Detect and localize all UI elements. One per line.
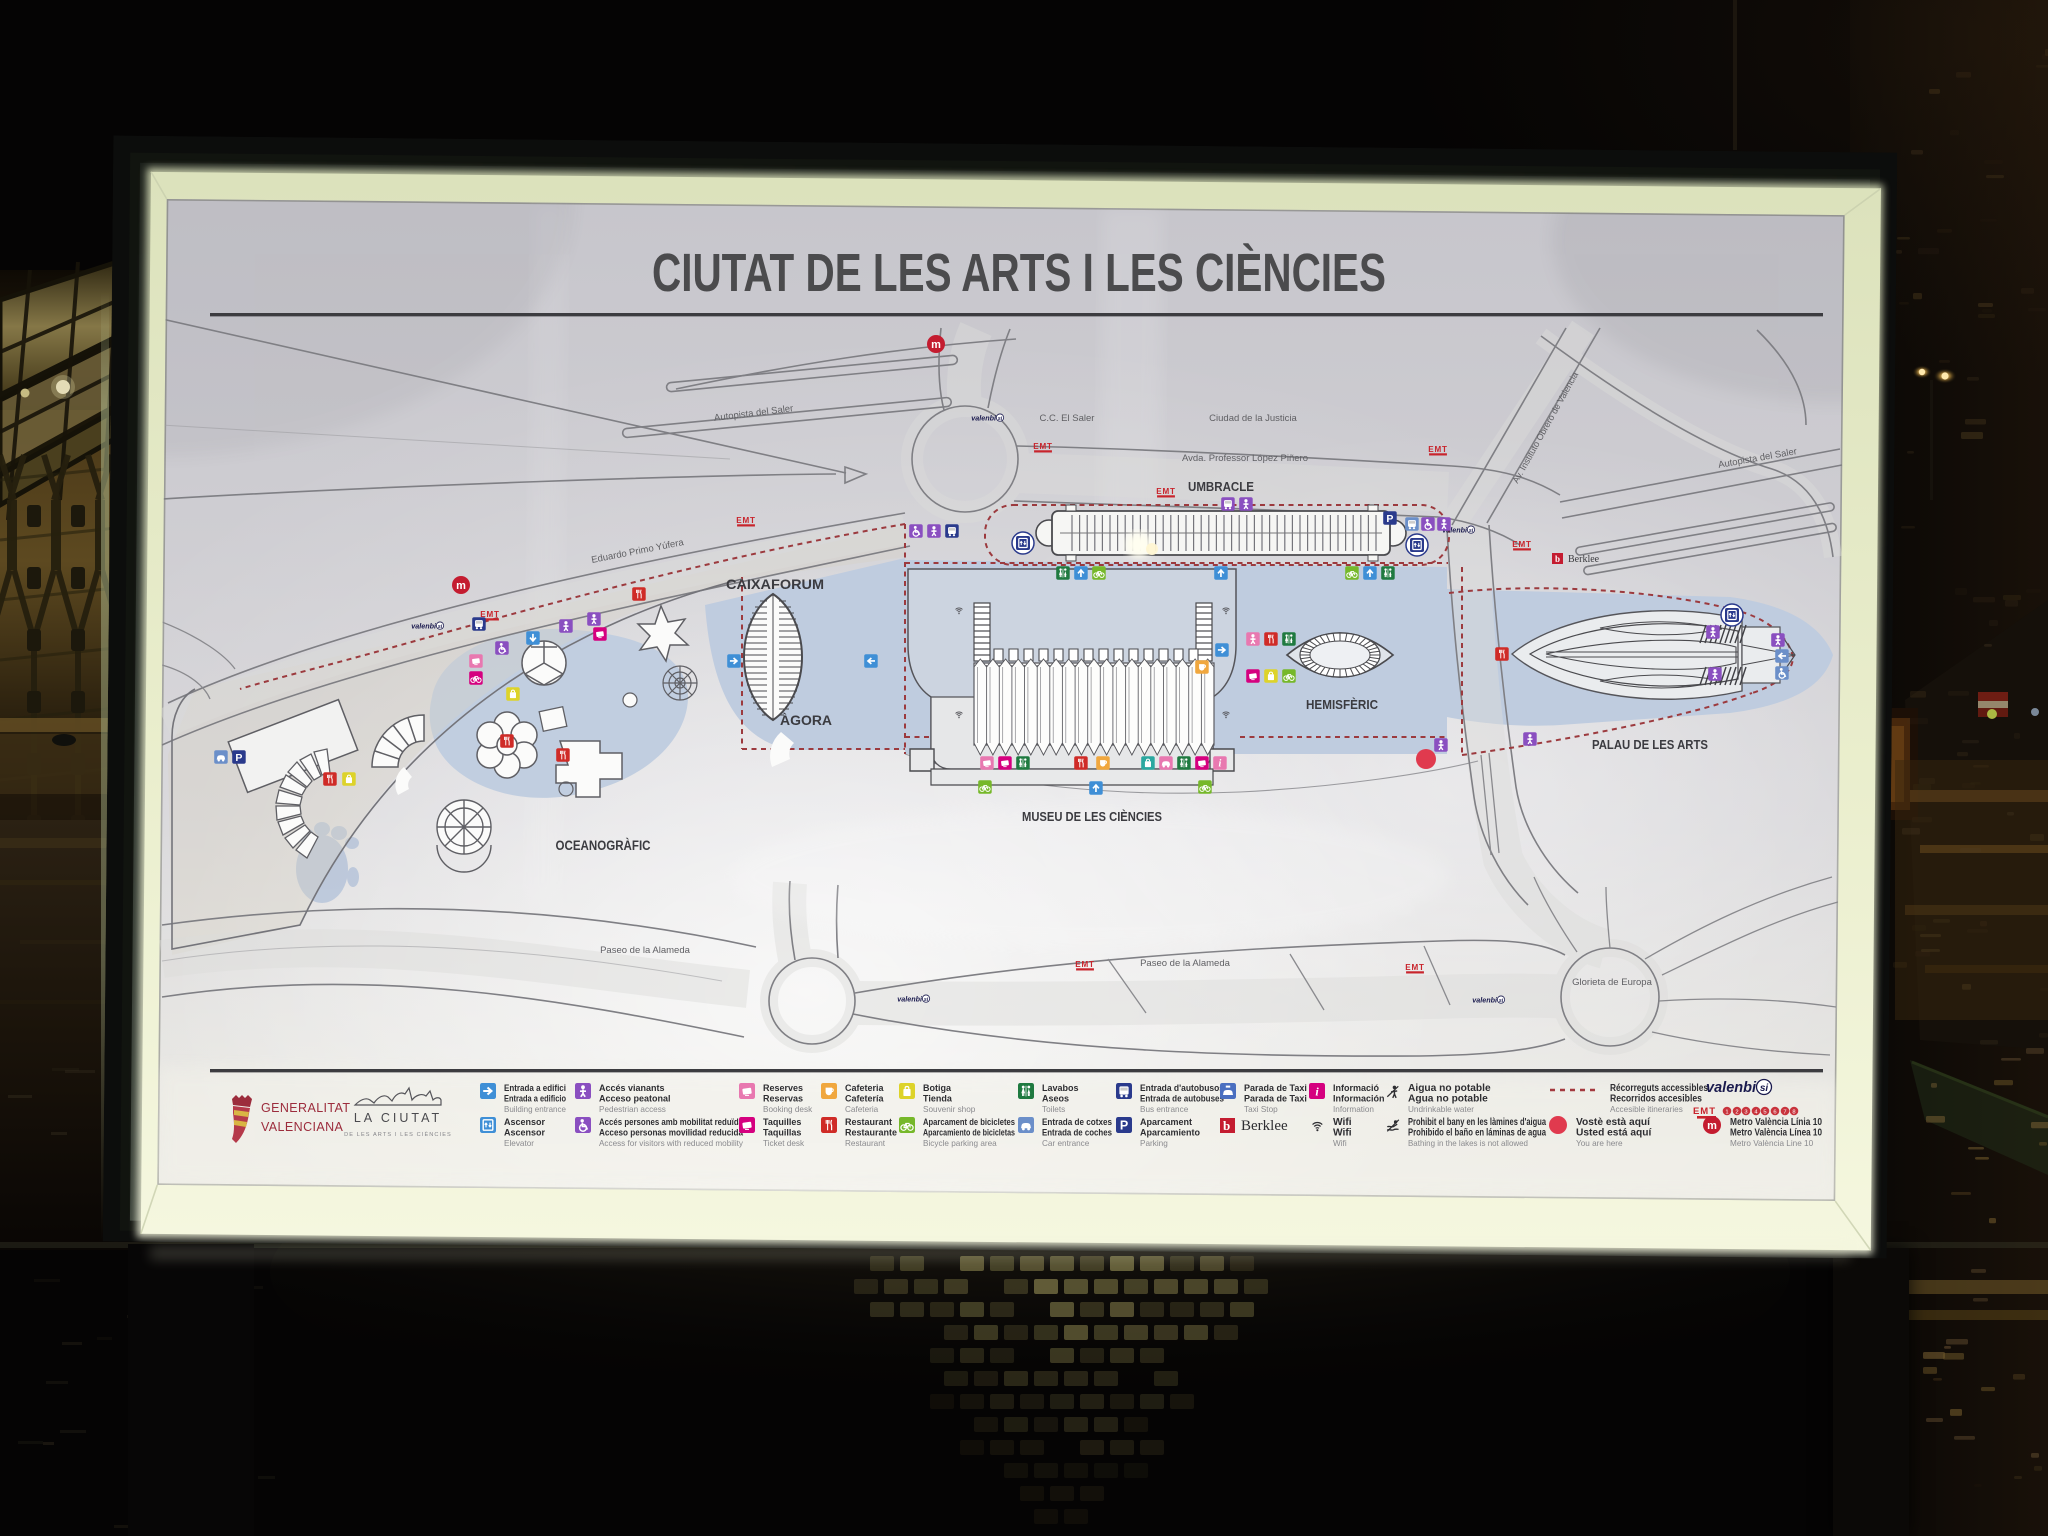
svg-text:DE LES ARTS I LES CIÈNCIES: DE LES ARTS I LES CIÈNCIES <box>344 1131 452 1138</box>
svg-text:Accés vianants: Accés vianants <box>599 1083 665 1093</box>
svg-text:LA CIUTAT: LA CIUTAT <box>354 1111 442 1125</box>
svg-text:Taquilles: Taquilles <box>763 1117 801 1127</box>
svg-text:ÀGORA: ÀGORA <box>780 713 832 728</box>
svg-text:i: i <box>1219 759 1222 770</box>
svg-text:Building entrance: Building entrance <box>504 1105 566 1114</box>
svg-text:Wifi: Wifi <box>1333 1128 1352 1139</box>
svg-text:EMT: EMT <box>736 516 756 525</box>
svg-text:Botiga: Botiga <box>923 1083 952 1093</box>
svg-text:Accesible itineraries: Accesible itineraries <box>1610 1105 1683 1114</box>
svg-text:P: P <box>1386 513 1393 525</box>
svg-text:P: P <box>235 752 242 764</box>
svg-text:Information: Information <box>1333 1105 1374 1114</box>
svg-text:7: 7 <box>1783 1110 1786 1116</box>
svg-text:Prohibido el baño en láminas d: Prohibido el baño en láminas de agua <box>1408 1128 1546 1139</box>
svg-text:si: si <box>924 997 929 1003</box>
svg-text:Entrada d'autobusos: Entrada d'autobusos <box>1140 1083 1224 1093</box>
svg-text:Entrada a edifici: Entrada a edifici <box>504 1083 566 1093</box>
svg-text:Pedestrian access: Pedestrian access <box>599 1105 666 1114</box>
svg-text:Aigua no potable: Aigua no potable <box>1408 1083 1491 1094</box>
svg-text:Glorieta de Europa: Glorieta de Europa <box>1572 977 1652 988</box>
svg-text:Berklee: Berklee <box>1568 554 1600 565</box>
svg-text:P: P <box>1120 1119 1128 1133</box>
svg-text:si: si <box>438 624 443 630</box>
svg-text:Entrada de coches: Entrada de coches <box>1042 1128 1112 1138</box>
svg-text:Ticket desk: Ticket desk <box>763 1139 805 1148</box>
svg-text:b: b <box>1223 1118 1230 1133</box>
svg-text:Paseo de la Alameda: Paseo de la Alameda <box>1140 958 1231 969</box>
svg-text:Parada de Taxi: Parada de Taxi <box>1244 1094 1307 1104</box>
svg-text:Bus entrance: Bus entrance <box>1140 1105 1189 1114</box>
svg-text:Access for visitors with reduc: Access for visitors with reduced mobilit… <box>599 1139 744 1148</box>
svg-text:valenbi: valenbi <box>411 621 437 630</box>
svg-text:Lavabos: Lavabos <box>1042 1083 1079 1093</box>
svg-text:EMT: EMT <box>1156 487 1176 496</box>
svg-text:CIUTAT DE LES ARTS I LES CIÈNC: CIUTAT DE LES ARTS I LES CIÈNCIES <box>652 243 1386 303</box>
svg-text:valenbi: valenbi <box>971 413 997 422</box>
svg-text:si: si <box>1499 998 1504 1004</box>
svg-text:m: m <box>456 580 466 592</box>
svg-text:Entrada de cotxes: Entrada de cotxes <box>1042 1117 1112 1127</box>
svg-text:Berklee: Berklee <box>1241 1118 1288 1134</box>
svg-text:Aparcamiento de bicicletas: Aparcamiento de bicicletas <box>923 1128 1015 1138</box>
svg-text:Elevator: Elevator <box>504 1139 534 1148</box>
svg-text:Récorreguts accessibles: Récorreguts accessibles <box>1610 1083 1708 1094</box>
svg-text:Restaurant: Restaurant <box>845 1139 886 1148</box>
svg-text:Taquillas: Taquillas <box>763 1128 801 1138</box>
svg-text:Restaurant: Restaurant <box>845 1117 892 1127</box>
svg-text:EMT: EMT <box>1693 1106 1716 1117</box>
svg-text:EMT: EMT <box>1512 540 1532 549</box>
svg-text:si: si <box>1760 1083 1769 1094</box>
svg-text:Accés persones amb mobilitat r: Accés persones amb mobilitat reduïda <box>599 1117 744 1127</box>
svg-text:Entrada a edificio: Entrada a edificio <box>504 1094 566 1104</box>
svg-text:EMT: EMT <box>1075 960 1095 969</box>
svg-text:Acceso personas movilidad redu: Acceso personas movilidad reducida <box>599 1128 744 1138</box>
svg-text:Undrinkable water: Undrinkable water <box>1408 1105 1474 1114</box>
svg-text:UMBRACLE: UMBRACLE <box>1188 479 1254 494</box>
svg-text:Taxi Stop: Taxi Stop <box>1244 1105 1278 1114</box>
svg-text:6: 6 <box>1773 1110 1776 1116</box>
svg-text:OCEANOGRÀFIC: OCEANOGRÀFIC <box>556 838 651 853</box>
svg-text:Metro València Línia 10: Metro València Línia 10 <box>1730 1117 1822 1128</box>
svg-text:Cafetería: Cafetería <box>845 1094 885 1104</box>
svg-text:valenbi: valenbi <box>897 994 923 1003</box>
svg-text:Entrada de autobuses: Entrada de autobuses <box>1140 1094 1224 1104</box>
svg-text:Bathing in the lakes is not al: Bathing in the lakes is not allowed <box>1408 1139 1528 1148</box>
svg-text:m: m <box>1707 1120 1717 1132</box>
svg-text:EMT: EMT <box>1428 445 1448 454</box>
svg-text:Tienda: Tienda <box>923 1094 953 1104</box>
svg-text:1: 1 <box>1725 1110 1728 1116</box>
svg-text:HEMISFÈRIC: HEMISFÈRIC <box>1306 697 1379 712</box>
svg-text:Aparcament: Aparcament <box>1140 1117 1192 1127</box>
svg-text:C.C. El Saler: C.C. El Saler <box>1040 413 1095 424</box>
svg-text:m: m <box>931 339 941 351</box>
svg-text:Souvenir shop: Souvenir shop <box>923 1105 976 1114</box>
svg-text:2: 2 <box>1735 1110 1738 1116</box>
svg-text:b: b <box>1555 554 1560 564</box>
svg-text:CAIXAFORUM: CAIXAFORUM <box>726 576 824 592</box>
svg-text:Parking: Parking <box>1140 1139 1168 1148</box>
svg-text:si: si <box>1469 528 1474 534</box>
svg-text:8: 8 <box>1792 1110 1795 1116</box>
svg-text:Cafeteria: Cafeteria <box>845 1083 885 1093</box>
svg-text:Cafeteria: Cafeteria <box>845 1105 879 1114</box>
svg-text:valenbi: valenbi <box>1472 995 1498 1004</box>
svg-text:Wifi: Wifi <box>1333 1117 1352 1128</box>
svg-text:Usted está aquí: Usted está aquí <box>1576 1128 1652 1139</box>
svg-text:EMT: EMT <box>1405 963 1425 972</box>
svg-text:Informació: Informació <box>1333 1083 1380 1093</box>
svg-text:Metro València Línea 10: Metro València Línea 10 <box>1730 1128 1822 1139</box>
svg-text:Booking desk: Booking desk <box>763 1105 813 1114</box>
svg-text:EMT: EMT <box>1033 442 1053 451</box>
svg-text:Aparcamiento: Aparcamiento <box>1140 1128 1201 1138</box>
svg-text:PALAU DE LES ARTS: PALAU DE LES ARTS <box>1592 738 1708 752</box>
svg-text:Agua no potable: Agua no potable <box>1408 1094 1488 1105</box>
svg-text:Prohibit el bany en les làmine: Prohibit el bany en les làmines d'aigua <box>1408 1117 1546 1128</box>
svg-text:Paseo de la Alameda: Paseo de la Alameda <box>600 945 691 956</box>
svg-text:GENERALITAT: GENERALITAT <box>261 1101 350 1115</box>
svg-text:Acceso peatonal: Acceso peatonal <box>599 1094 671 1104</box>
svg-text:Vostè està aquí: Vostè està aquí <box>1576 1117 1651 1128</box>
svg-text:5: 5 <box>1763 1110 1766 1116</box>
svg-text:Wifi: Wifi <box>1333 1139 1347 1148</box>
svg-text:Bicycle parking area: Bicycle parking area <box>923 1139 997 1148</box>
svg-text:Información: Información <box>1333 1094 1385 1104</box>
svg-text:Recorridos accesibles: Recorridos accesibles <box>1610 1094 1702 1105</box>
svg-text:Restaurante: Restaurante <box>845 1128 897 1138</box>
svg-text:You are here: You are here <box>1576 1139 1623 1148</box>
svg-text:Car entrance: Car entrance <box>1042 1139 1090 1148</box>
svg-text:3: 3 <box>1744 1110 1747 1116</box>
svg-text:valenbi: valenbi <box>1706 1080 1757 1096</box>
svg-text:Ascensor: Ascensor <box>504 1128 546 1138</box>
svg-text:Ascensor: Ascensor <box>504 1117 546 1127</box>
svg-text:Toilets: Toilets <box>1042 1105 1065 1114</box>
svg-text:si: si <box>998 416 1003 422</box>
svg-text:VALENCIANA: VALENCIANA <box>261 1120 344 1134</box>
svg-text:Reservas: Reservas <box>763 1094 803 1104</box>
svg-text:Reserves: Reserves <box>763 1083 803 1093</box>
svg-text:Avda. Professor López Piñero: Avda. Professor López Piñero <box>1182 453 1308 464</box>
svg-text:Metro València Line 10: Metro València Line 10 <box>1730 1139 1814 1148</box>
svg-text:Aparcament de bicicletes: Aparcament de bicicletes <box>923 1117 1015 1127</box>
svg-text:MUSEU DE LES CIÈNCIES: MUSEU DE LES CIÈNCIES <box>1022 809 1162 824</box>
svg-text:Parada de Taxi: Parada de Taxi <box>1244 1083 1307 1093</box>
svg-text:Aseos: Aseos <box>1042 1094 1069 1104</box>
svg-text:Ciudad de la Justicia: Ciudad de la Justicia <box>1209 413 1297 424</box>
